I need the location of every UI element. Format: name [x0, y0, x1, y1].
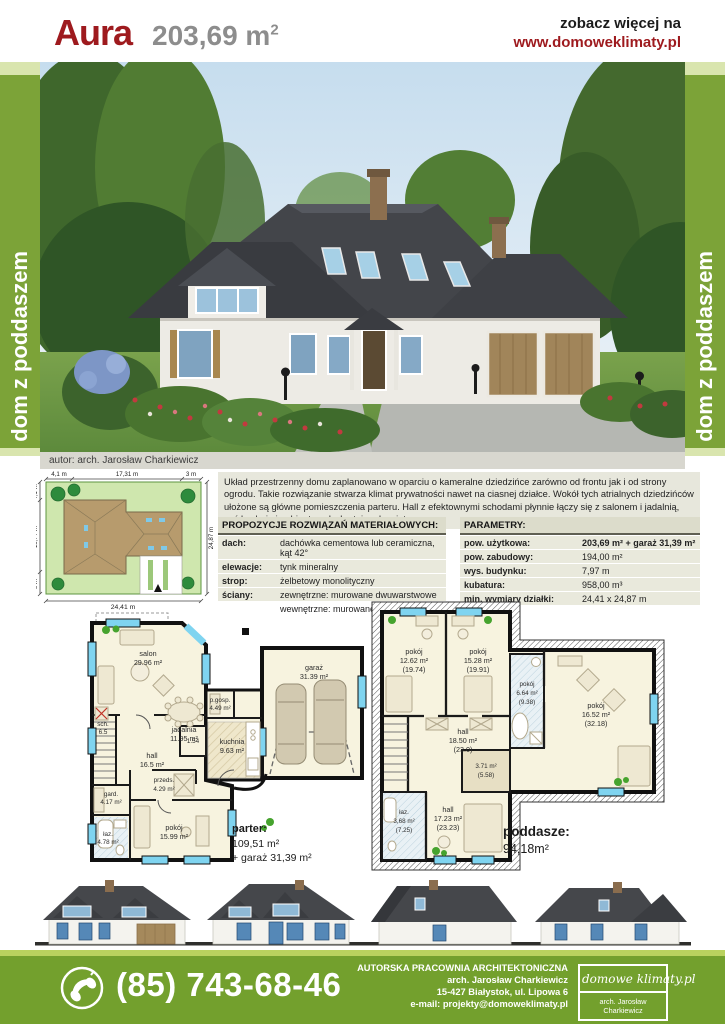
room-label-kuchnia: kuchnia	[220, 737, 245, 746]
storage-room	[462, 750, 510, 792]
row-value: 194,00 m²	[582, 552, 623, 562]
room-label-pokoj: pokój	[165, 823, 183, 832]
table-row: wys. budynku:7,97 m	[460, 564, 700, 577]
room-label-wc: 1.54	[187, 738, 200, 745]
elevation-side-right	[535, 882, 687, 944]
room-gross: (23.0)	[454, 745, 473, 754]
table-row: kubatura:958,00 m³	[460, 578, 700, 591]
dim-right: 24,87 m	[208, 527, 215, 549]
table-row: dach:dachówka cementowa lub ceramiczna, …	[218, 536, 446, 559]
room-label-laz: łaz.	[103, 831, 113, 838]
room-area: 3,68 m²	[393, 818, 414, 825]
studio-line: arch. Jarosław Charkiewicz	[350, 974, 568, 986]
parameters-table: PARAMETRY: pow. użytkowa:203,69 m² + gar…	[460, 517, 700, 605]
row-label: strop:	[222, 576, 280, 586]
project-area-value: 203,69 m	[152, 20, 270, 51]
phone-icon	[58, 964, 106, 1012]
table-row: pow. zabudowy:194,00 m²	[460, 550, 700, 563]
parter-caption: parter: 109,51 m² + garaż 31,39 m²	[232, 822, 312, 865]
row-label: dach:	[222, 538, 280, 558]
room-area: 18.50 m²	[449, 736, 478, 745]
room-gross: (23.23)	[437, 823, 460, 832]
row-label: wys. budynku:	[464, 566, 582, 576]
row-label: ściany:	[222, 590, 280, 600]
dim-top-1: 4,1 m	[51, 471, 66, 478]
parter-caption-area: 109,51 m²	[232, 837, 312, 851]
project-area-sup: 2	[270, 22, 278, 39]
dim-left-1: 4,1 m	[36, 484, 39, 499]
studio-address: AUTORSKA PRACOWNIA ARCHITEKTONICZNA arch…	[350, 962, 568, 1010]
parameters-title: PARAMETRY:	[460, 517, 700, 535]
dim-top-3: 3 m	[186, 471, 196, 478]
studio-line: 15-427 Białystok, ul. Lipowa 6	[350, 986, 568, 998]
photo-author-caption: autor: arch. Jarosław Charkiewicz	[40, 452, 685, 469]
room-label-przeds: przeds.	[154, 777, 175, 784]
website-link[interactable]: www.domoweklimaty.pl	[513, 34, 681, 53]
brochure-page: Aura 203,69 m2 zobacz więcej na www.domo…	[0, 0, 725, 1024]
see-more-label: zobacz więcej na	[513, 15, 681, 34]
studio-line: AUTORSKA PRACOWNIA ARCHITEKTONICZNA	[350, 962, 568, 974]
room-label-laz: łaz.	[399, 809, 409, 816]
row-value: żelbetowy monolityczny	[280, 576, 375, 586]
room-label-storage: 3.71 m²	[475, 763, 496, 770]
room-gross: (19.91)	[467, 665, 490, 674]
fireplace	[95, 707, 108, 720]
room-gross: (7.25)	[396, 827, 412, 834]
room-area: 4.17 m²	[100, 799, 121, 806]
row-value: 958,00 m³	[582, 580, 623, 590]
room-area: 15.28 m²	[464, 656, 493, 665]
materials-title: PROPOZYCJE ROZWIĄZAŃ MATERIAŁOWYCH:	[218, 517, 446, 535]
room-label-pokoj1: pokój	[405, 647, 423, 656]
company-logo: domowe klimaty.pl arch. Jarosław Charkie…	[578, 964, 668, 1021]
room-area: 4.49 m²	[209, 705, 230, 712]
project-area: 203,69 m2	[152, 20, 279, 52]
dim-left-3: 5 m	[36, 579, 39, 589]
poddasze-caption-title: poddasze:	[503, 823, 570, 841]
driveway	[140, 556, 182, 594]
row-value: dachówka cementowa lub ceramiczna, kąt 4…	[280, 538, 442, 558]
room-gross: (32.18)	[585, 719, 608, 728]
row-label: pow. użytkowa:	[464, 538, 582, 548]
logo-title: domowe klimaty.pl	[580, 966, 666, 993]
table-row: elewacje:tynk mineralny	[218, 560, 446, 573]
room-area: 31.39 m²	[300, 672, 329, 681]
room-area: 4.78 m²	[97, 839, 118, 846]
row-label: kubatura:	[464, 580, 582, 590]
pergola-post	[242, 628, 249, 635]
room-area: 6.5	[99, 729, 108, 736]
poddasze-caption-area: 94,18m²	[503, 841, 570, 858]
room-label-hall: hall	[146, 751, 158, 760]
room-label-gard: gard.	[104, 791, 119, 798]
row-value: tynk mineralny	[280, 562, 338, 572]
chimney	[370, 174, 387, 220]
dormer-window	[196, 288, 258, 313]
right-banner-text: dom z poddaszem	[692, 251, 718, 442]
room-area: 29.96 m²	[134, 658, 163, 667]
site-plan-drawing: 4,1 m 17,31 m 3 m 4,1 m 15,77 m 5 m 24,8…	[36, 470, 216, 610]
room-area: 15.99 m²	[160, 832, 189, 841]
left-banner: dom z poddaszem	[0, 62, 40, 456]
room-area: 9.63 m²	[220, 746, 245, 755]
table-row: pow. użytkowa:203,69 m² + garaż 31,39 m²	[460, 536, 700, 549]
elevation-drawings	[35, 876, 691, 950]
room-area: 17.23 m²	[434, 814, 463, 823]
row-value: 7,97 m	[582, 566, 610, 576]
room-gross: (19.74)	[403, 665, 426, 674]
dim-left-2: 15,77 m	[36, 526, 39, 548]
room-label-sch: sch.	[97, 721, 109, 728]
row-label: elewacje:	[222, 562, 280, 572]
right-banner: dom z poddaszem	[685, 62, 725, 456]
room-label-hall2: hall	[442, 805, 454, 814]
phone-number[interactable]: (85) 743-68-46	[116, 966, 341, 1004]
footer: (85) 743-68-46 AUTORSKA PRACOWNIA ARCHIT…	[0, 956, 725, 1024]
ground-floor-plan: salon 29.96 m² jadalnia 11.95 m² hall 16…	[56, 610, 376, 872]
room-label-garaz: garaż	[305, 663, 323, 672]
room-label-pgosp: p.gosp.	[210, 697, 231, 704]
chimney-2	[492, 222, 506, 258]
elevation-garden	[207, 880, 355, 944]
parter-caption-garage: + garaż 31,39 m²	[232, 851, 312, 865]
row-label: pow. zabudowy:	[464, 552, 582, 562]
logo-subtitle: arch. Jarosław Charkiewicz	[580, 993, 666, 1019]
parter-caption-title: parter:	[232, 822, 312, 837]
room-label-pokoj2: pokój	[469, 647, 487, 656]
room-gross: (5.58)	[478, 772, 494, 779]
room-area: 16.52 m²	[582, 710, 611, 719]
elevation-side-left	[371, 880, 517, 944]
project-title: Aura	[54, 12, 132, 54]
house-photo-illustration	[40, 62, 685, 452]
room-gross: (9.38)	[519, 699, 535, 706]
header-links: zobacz więcej na www.domoweklimaty.pl	[513, 15, 681, 53]
table-row: strop:żelbetowy monolityczny	[218, 574, 446, 587]
room-area: 16.5 m²	[140, 760, 165, 769]
studio-line[interactable]: e-mail: projekty@domoweklimaty.pl	[350, 998, 568, 1010]
room-label-pokoj3: pokój	[519, 681, 534, 688]
room-label-pokoj4: pokój	[587, 701, 605, 710]
dim-top-2: 17,31 m	[116, 471, 138, 478]
front-door	[362, 330, 386, 390]
elevation-front	[43, 880, 191, 944]
room-label-jadalnia: jadalnia	[171, 725, 197, 734]
room-label-salon: salon	[139, 649, 156, 658]
room-area: 6.64 m²	[516, 690, 537, 697]
room-label-hall: hall	[457, 727, 469, 736]
poddasze-caption: poddasze: 94,18m²	[503, 823, 570, 858]
left-banner-text: dom z poddaszem	[7, 251, 33, 442]
room-area: 4.29 m²	[153, 786, 174, 793]
room-area: 12.62 m²	[400, 656, 429, 665]
row-value: 203,69 m² + garaż 31,39 m²	[582, 538, 695, 548]
